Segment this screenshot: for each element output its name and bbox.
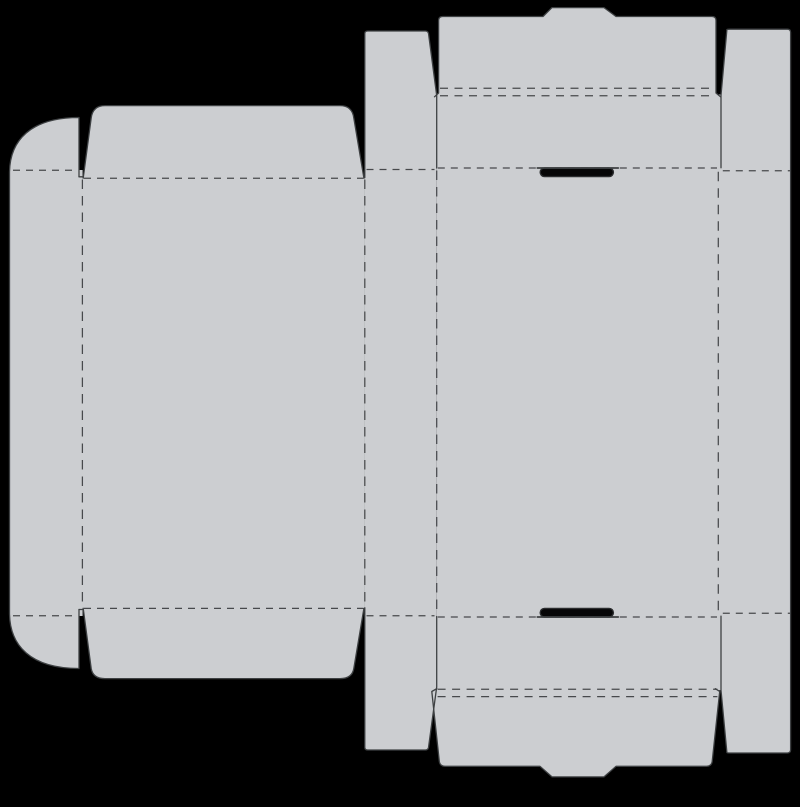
dieline-svg: [0, 0, 800, 807]
dieline-canvas: [0, 0, 800, 807]
lid-main-panel: [82, 178, 365, 609]
left-side-wall-panel: [10, 170, 83, 616]
lid-bottom-flap: [83, 608, 364, 679]
bottom-lock-slot: [540, 608, 613, 617]
bottom-lock-tab: [432, 689, 720, 777]
top-lock-slot: [540, 168, 613, 177]
top-lock-tab: [435, 8, 721, 97]
lid-top-flap: [83, 106, 364, 179]
right-wall-strip: [721, 29, 791, 753]
base-main-panel: [437, 95, 722, 691]
left-wall-strip: [365, 31, 437, 750]
